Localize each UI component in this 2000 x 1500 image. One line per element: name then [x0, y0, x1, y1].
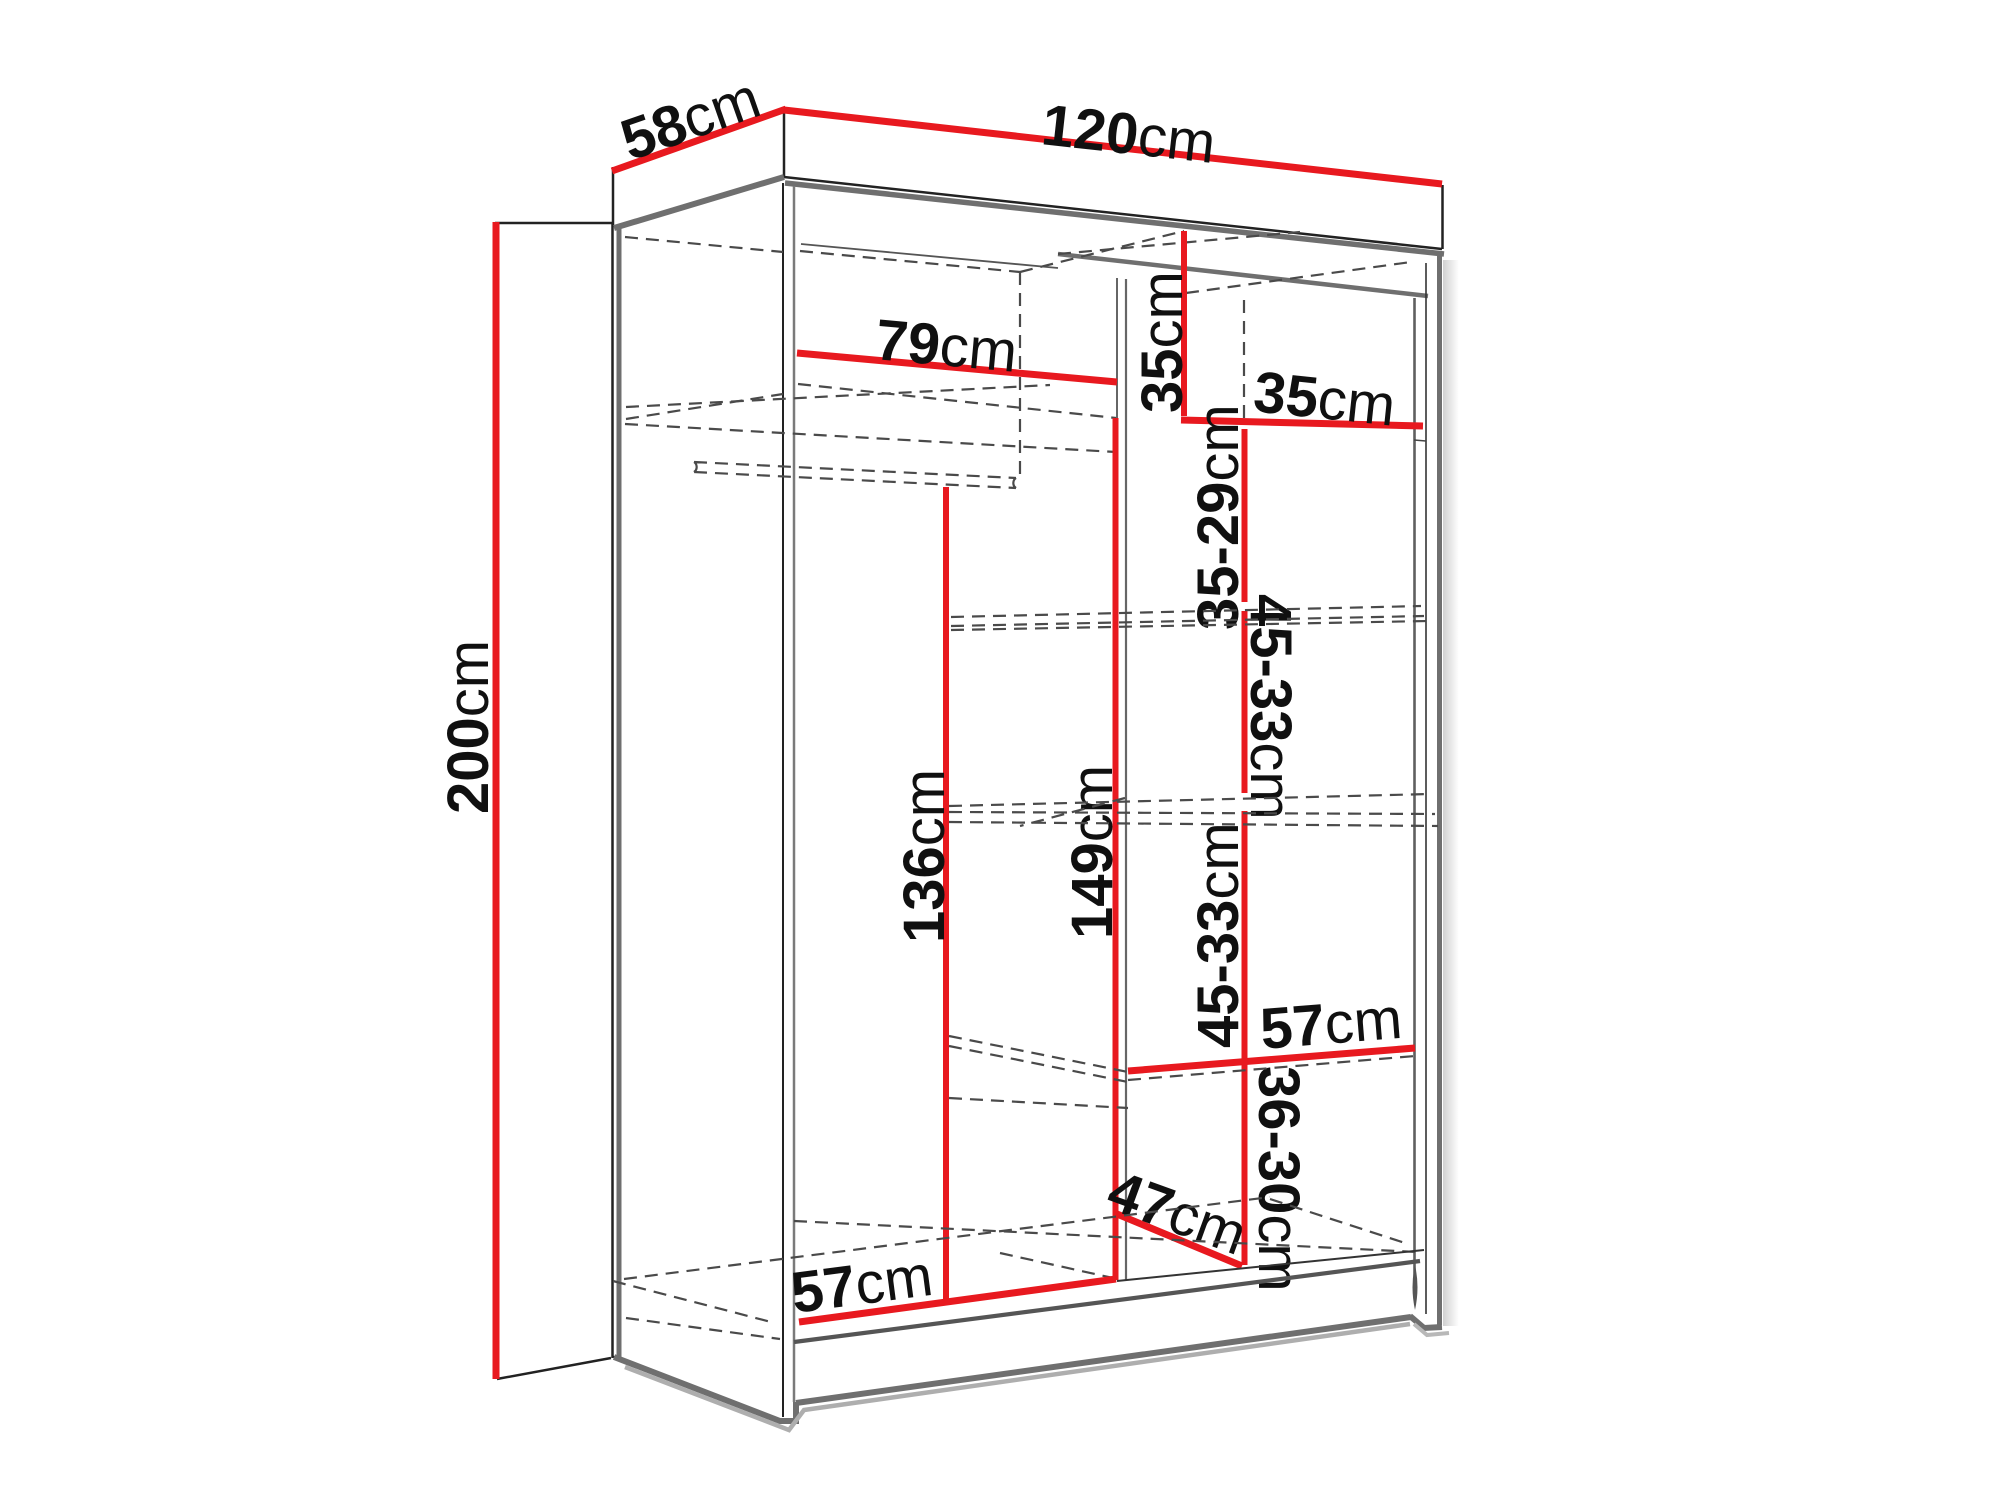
- svg-text:149cm: 149cm: [1060, 765, 1125, 939]
- svg-text:200cm: 200cm: [436, 640, 501, 814]
- svg-text:36-30cm: 36-30cm: [1246, 1066, 1311, 1292]
- svg-text:35cm: 35cm: [1130, 271, 1195, 413]
- svg-text:79cm: 79cm: [873, 307, 1020, 385]
- svg-text:136cm: 136cm: [892, 769, 957, 943]
- svg-text:45-33cm: 45-33cm: [1186, 822, 1251, 1048]
- svg-text:57cm: 57cm: [1258, 986, 1405, 1062]
- svg-text:45-33cm: 45-33cm: [1238, 594, 1303, 820]
